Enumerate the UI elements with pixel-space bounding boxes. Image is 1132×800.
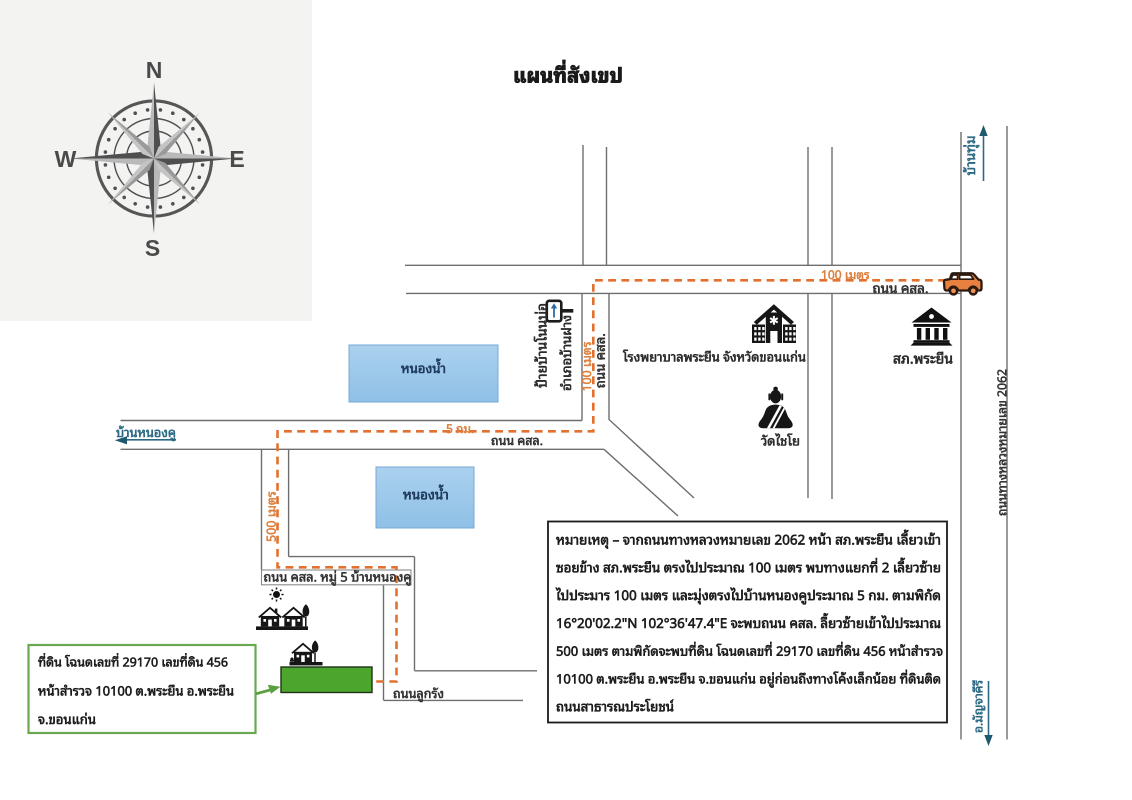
svg-text:W: W bbox=[55, 146, 77, 172]
svg-text:S: S bbox=[145, 235, 160, 261]
svg-text:E: E bbox=[229, 146, 244, 172]
svg-text:N: N bbox=[146, 57, 163, 83]
